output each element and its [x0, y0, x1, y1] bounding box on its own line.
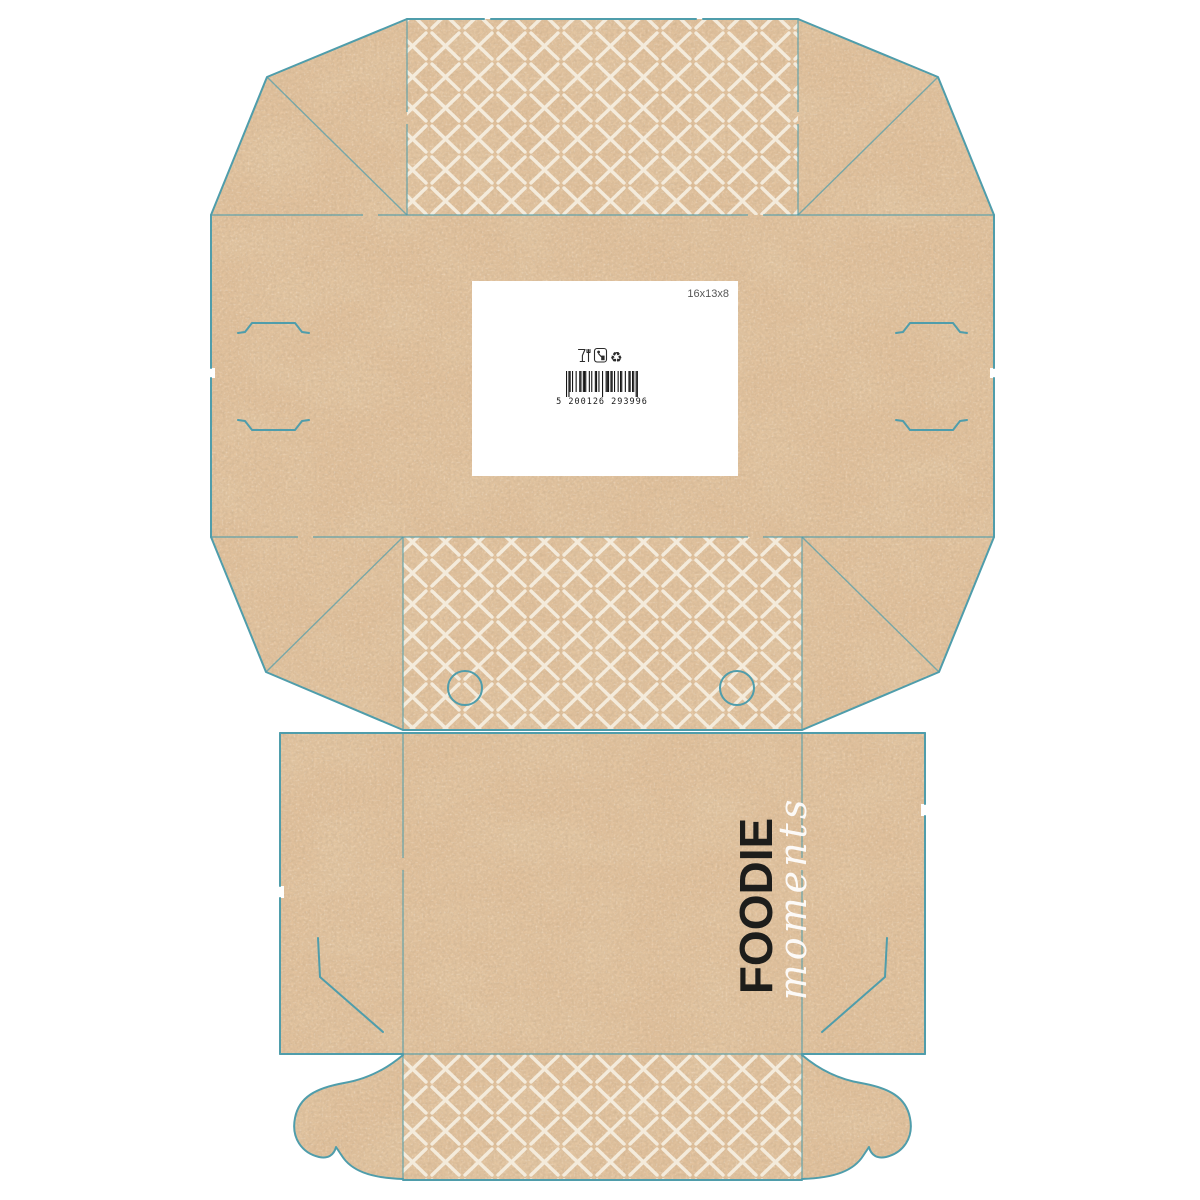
brand-tagline-text: moments: [771, 796, 815, 1001]
barcode-bar: [566, 371, 567, 397]
barcode-bar: [595, 371, 596, 392]
tray-left-notch: [275, 886, 284, 898]
product-label: 16x13x8 ♻ 5 200126 293996: [472, 281, 738, 476]
barcode-bar: [614, 371, 615, 392]
barcode-bar: [620, 371, 621, 392]
barcode-bar: [584, 371, 585, 392]
mid-flap-pattern: [403, 537, 802, 730]
barcode-bar: [612, 371, 613, 392]
tray-right-notch: [921, 804, 930, 816]
barcode-bar: [608, 371, 609, 392]
barcode-bar: [632, 371, 633, 392]
top-flap-pattern: [407, 19, 798, 215]
tray-panel: [280, 733, 925, 1054]
barcode-bar: [570, 371, 571, 392]
barcode-bar: [568, 371, 569, 397]
label-background: [472, 281, 738, 476]
bottom-flap-pattern: [403, 1054, 802, 1180]
barcode-bar: [633, 371, 634, 392]
right-lock-tab: [802, 1055, 911, 1179]
barcode-bar: [598, 371, 599, 392]
box-dimensions-text: 16x13x8: [687, 288, 729, 300]
recycle-icon: ♻: [610, 350, 623, 366]
barcode-bar: [589, 371, 590, 392]
barcode-bar: [625, 371, 626, 392]
barcode-bar: [637, 371, 638, 397]
left-lock-tab: [294, 1055, 403, 1179]
barcode-bar: [580, 371, 581, 392]
barcode-bar: [618, 371, 619, 392]
dieline-artboard: 16x13x8 ♻ 5 200126 293996 FOODIE: [0, 0, 1200, 1200]
dieline-canvas: 16x13x8 ♻ 5 200126 293996 FOODIE: [0, 0, 1200, 1200]
barcode-bar: [606, 371, 607, 392]
barcode-bar: [585, 371, 586, 392]
right-edge-notch: [990, 368, 999, 378]
barcode-bar: [628, 371, 629, 392]
barcode-bar: [610, 371, 611, 392]
barcode-bar: [583, 371, 584, 392]
branding: FOODIE moments: [730, 796, 815, 1001]
barcode-bar: [621, 371, 622, 392]
barcode-bar: [596, 371, 597, 392]
barcode-bar: [579, 371, 580, 392]
svg-text:♻: ♻: [610, 350, 623, 366]
barcode-bar: [602, 371, 603, 397]
barcode-bar: [572, 371, 573, 392]
barcode-bar: [607, 371, 608, 392]
left-edge-notch: [206, 368, 215, 378]
barcode: 5 200126 293996: [556, 371, 648, 407]
barcode-bar: [636, 371, 637, 397]
barcode-digits: 5 200126 293996: [556, 397, 648, 407]
barcode-bar: [576, 371, 577, 392]
barcode-bar: [630, 371, 631, 392]
barcode-bar: [591, 371, 592, 392]
